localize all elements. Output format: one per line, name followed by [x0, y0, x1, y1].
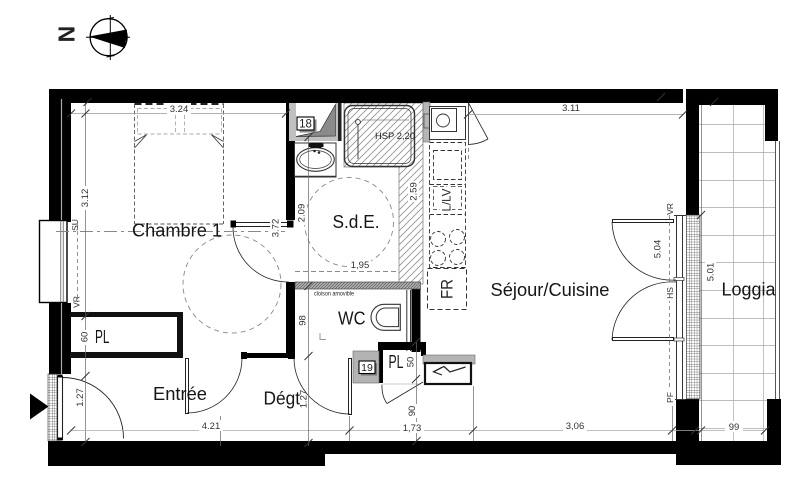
svg-text:VR: VR	[665, 203, 675, 215]
svg-text:PF: PF	[665, 392, 675, 403]
svg-text:3.24: 3.24	[170, 104, 189, 115]
svg-text:Chambre 1: Chambre 1	[132, 220, 222, 241]
svg-text:3.72: 3.72	[271, 219, 282, 238]
svg-text:cloison amovible: cloison amovible	[314, 291, 354, 298]
svg-text:90: 90	[407, 406, 418, 417]
svg-text:Loggia: Loggia	[722, 279, 777, 300]
svg-text:2.09: 2.09	[297, 204, 308, 223]
svg-text:19: 19	[361, 362, 373, 374]
svg-text:3,06: 3,06	[566, 421, 585, 432]
svg-text:FR: FR	[439, 279, 457, 299]
svg-text:3.11: 3.11	[562, 103, 580, 114]
svg-text:5.01: 5.01	[706, 263, 717, 282]
svg-text:98: 98	[298, 315, 309, 326]
svg-text:PL: PL	[389, 351, 404, 372]
svg-text:4.21: 4.21	[202, 421, 221, 432]
svg-text:18: 18	[299, 119, 312, 131]
svg-text:HSP 2,20: HSP 2,20	[375, 131, 415, 141]
svg-text:SU: SU	[70, 219, 80, 231]
svg-text:WC: WC	[338, 308, 366, 329]
svg-text:Séjour/Cuisine: Séjour/Cuisine	[491, 279, 610, 300]
svg-text:Dégt: Dégt	[264, 388, 301, 409]
svg-text:60: 60	[80, 332, 91, 343]
svg-text:1,95: 1,95	[351, 260, 370, 271]
svg-text:L/LV: L/LV	[440, 189, 454, 212]
svg-text:1,73: 1,73	[403, 423, 422, 434]
svg-text:99: 99	[729, 422, 740, 433]
svg-text:50: 50	[406, 357, 417, 368]
svg-text:1.27: 1.27	[299, 390, 310, 409]
svg-text:VR: VR	[72, 296, 82, 308]
svg-text:5.04: 5.04	[653, 240, 664, 259]
svg-text:3.12: 3.12	[80, 189, 91, 208]
svg-text:2.59: 2.59	[409, 182, 420, 201]
svg-text:1.27: 1.27	[75, 388, 86, 407]
svg-text:Entrée: Entrée	[153, 383, 207, 404]
svg-text:PL: PL	[95, 326, 110, 347]
svg-text:N: N	[54, 26, 80, 43]
svg-text:S.d.E.: S.d.E.	[333, 211, 380, 232]
svg-text:HS: HS	[665, 287, 675, 299]
